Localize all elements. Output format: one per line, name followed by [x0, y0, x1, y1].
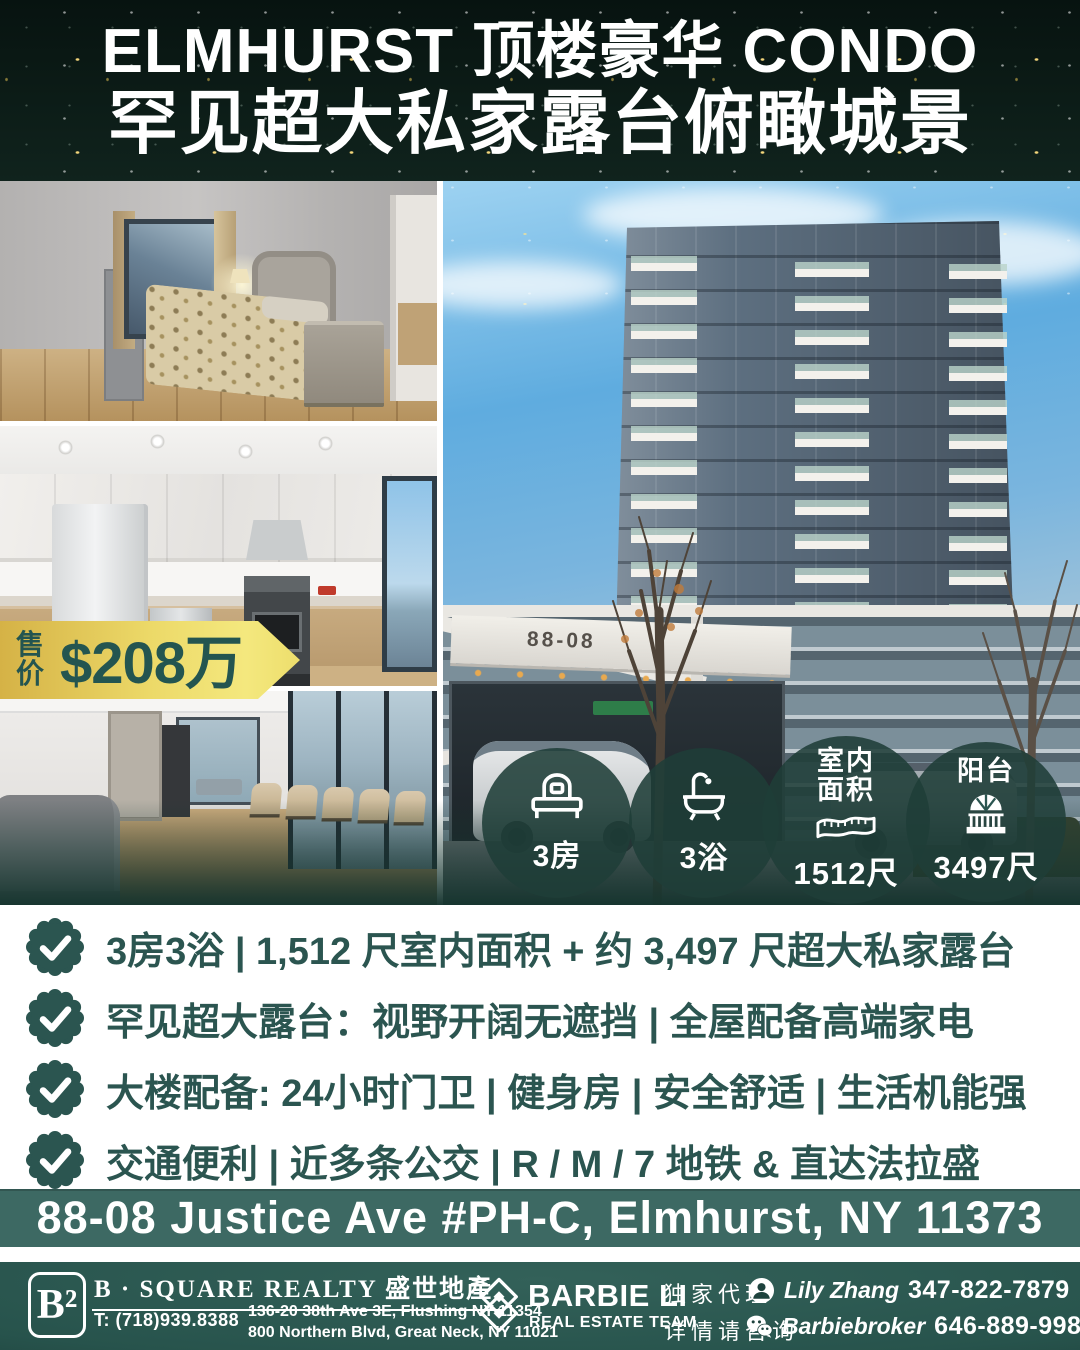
feature-row: 3房3浴 | 1,512 尺室内面积 + 约 3,497 尺超大私家露台: [26, 915, 1015, 979]
badge-balcony-title: 阳台: [957, 757, 1015, 786]
recessed-light: [150, 434, 165, 449]
building-number-sign: 88-08: [527, 628, 597, 654]
counter-items: [318, 586, 336, 595]
feature-text: 3房3浴 | 1,512 尺室内面积 + 约 3,497 尺超大私家露台: [106, 920, 1015, 975]
wechat-icon: [746, 1313, 773, 1340]
badge-balcony-area: 阳台 3497尺: [906, 742, 1066, 902]
badge-bedrooms-label: 3房: [533, 831, 582, 875]
bed-icon: [524, 771, 590, 823]
wechat-contact: Barbiebroker 646-889-9988: [746, 1312, 1080, 1341]
check-seal-icon: [26, 1060, 84, 1118]
listing-address: 88-08 Justice Ave #PH-C, Elmhurst, NY 11…: [37, 1192, 1044, 1244]
agent-contact: Lily Zhang 347-822-7879: [748, 1276, 1070, 1305]
bsquare-phone: T: (718)939.8388: [94, 1310, 239, 1331]
badge-interior-value: 1512尺: [794, 848, 899, 893]
price-value: $208万: [60, 616, 242, 705]
bathroom-vanity: [398, 303, 437, 365]
feature-row: 罕见超大露台：视野开阔无遮挡 | 全屋配备高端家电: [26, 986, 974, 1050]
feature-text: 罕见超大露台：视野开阔无遮挡 | 全屋配备高端家电: [106, 991, 974, 1046]
badge-interior-title-1: 室内: [817, 747, 875, 776]
price-label: 售价: [16, 631, 48, 688]
feature-text: 交通便利 | 近多条公交 | R / M / 7 地铁 & 直达法拉盛: [106, 1133, 980, 1188]
recessed-light: [58, 440, 73, 455]
balconies-column: [949, 245, 1007, 653]
person-icon: [748, 1277, 775, 1304]
street-sign: [593, 701, 653, 715]
bedside-lamp: [230, 269, 250, 283]
kitchen-window: [382, 476, 437, 672]
check-seal-icon: [26, 989, 84, 1047]
badge-bedrooms: 3房: [482, 748, 632, 898]
badge-bathrooms: 3浴: [629, 748, 779, 898]
bathtub-icon: [676, 769, 732, 825]
nightstand: [304, 321, 384, 407]
badge-interior-title-2: 面积: [817, 776, 875, 805]
feature-row: 交通便利 | 近多条公交 | R / M / 7 地铁 & 直达法拉盛: [26, 1128, 980, 1192]
wechat-id: Barbiebroker: [782, 1313, 925, 1340]
barbie-li-logo: [478, 1276, 520, 1334]
recessed-light: [238, 444, 253, 459]
wechat-phone: 646-889-9988: [934, 1312, 1080, 1341]
header-banner: ELMHURST 顶楼豪华 CONDO 罕见超大私家露台俯瞰城景: [0, 0, 1080, 181]
badge-bathrooms-label: 3浴: [680, 833, 729, 877]
feature-row: 大楼配备: 24小时门卫 | 健身房 | 安全舒适 | 生活机能强: [26, 1057, 1027, 1121]
check-seal-icon: [26, 1131, 84, 1189]
headline-line1: ELMHURST 顶楼豪华 CONDO: [102, 19, 979, 84]
bathroom-doorway: [390, 195, 437, 401]
recessed-light: [318, 436, 333, 451]
balconies-column: [631, 237, 697, 653]
bedroom-photo: [0, 181, 437, 421]
feature-text: 大楼配备: 24小时门卫 | 健身房 | 安全舒适 | 生活机能强: [106, 1062, 1027, 1117]
balconies-column: [795, 243, 869, 653]
badge-interior-area: 室内 面积 1512尺: [762, 736, 930, 904]
price-ribbon: 售价 $208万: [0, 621, 300, 699]
agent-phone: 347-822-7879: [908, 1276, 1070, 1305]
badge-balcony-value: 3497尺: [934, 842, 1039, 887]
range-hood: [246, 520, 308, 560]
agent-name: Lily Zhang: [784, 1277, 899, 1304]
address-bar: 88-08 Justice Ave #PH-C, Elmhurst, NY 11…: [0, 1189, 1080, 1247]
footer: B² B · SQUARE REALTY 盛世地產 T: (718)939.83…: [0, 1262, 1080, 1350]
real-estate-flyer: ELMHURST 顶楼豪华 CONDO 罕见超大私家露台俯瞰城景: [0, 0, 1080, 1350]
tape-measure-icon: [815, 810, 877, 844]
headline-line2: 罕见超大私家露台俯瞰城景: [108, 85, 972, 162]
bsquare-logo: B²: [28, 1272, 86, 1338]
balcony-icon: [960, 790, 1012, 838]
dining-table: [196, 779, 242, 795]
check-seal-icon: [26, 918, 84, 976]
